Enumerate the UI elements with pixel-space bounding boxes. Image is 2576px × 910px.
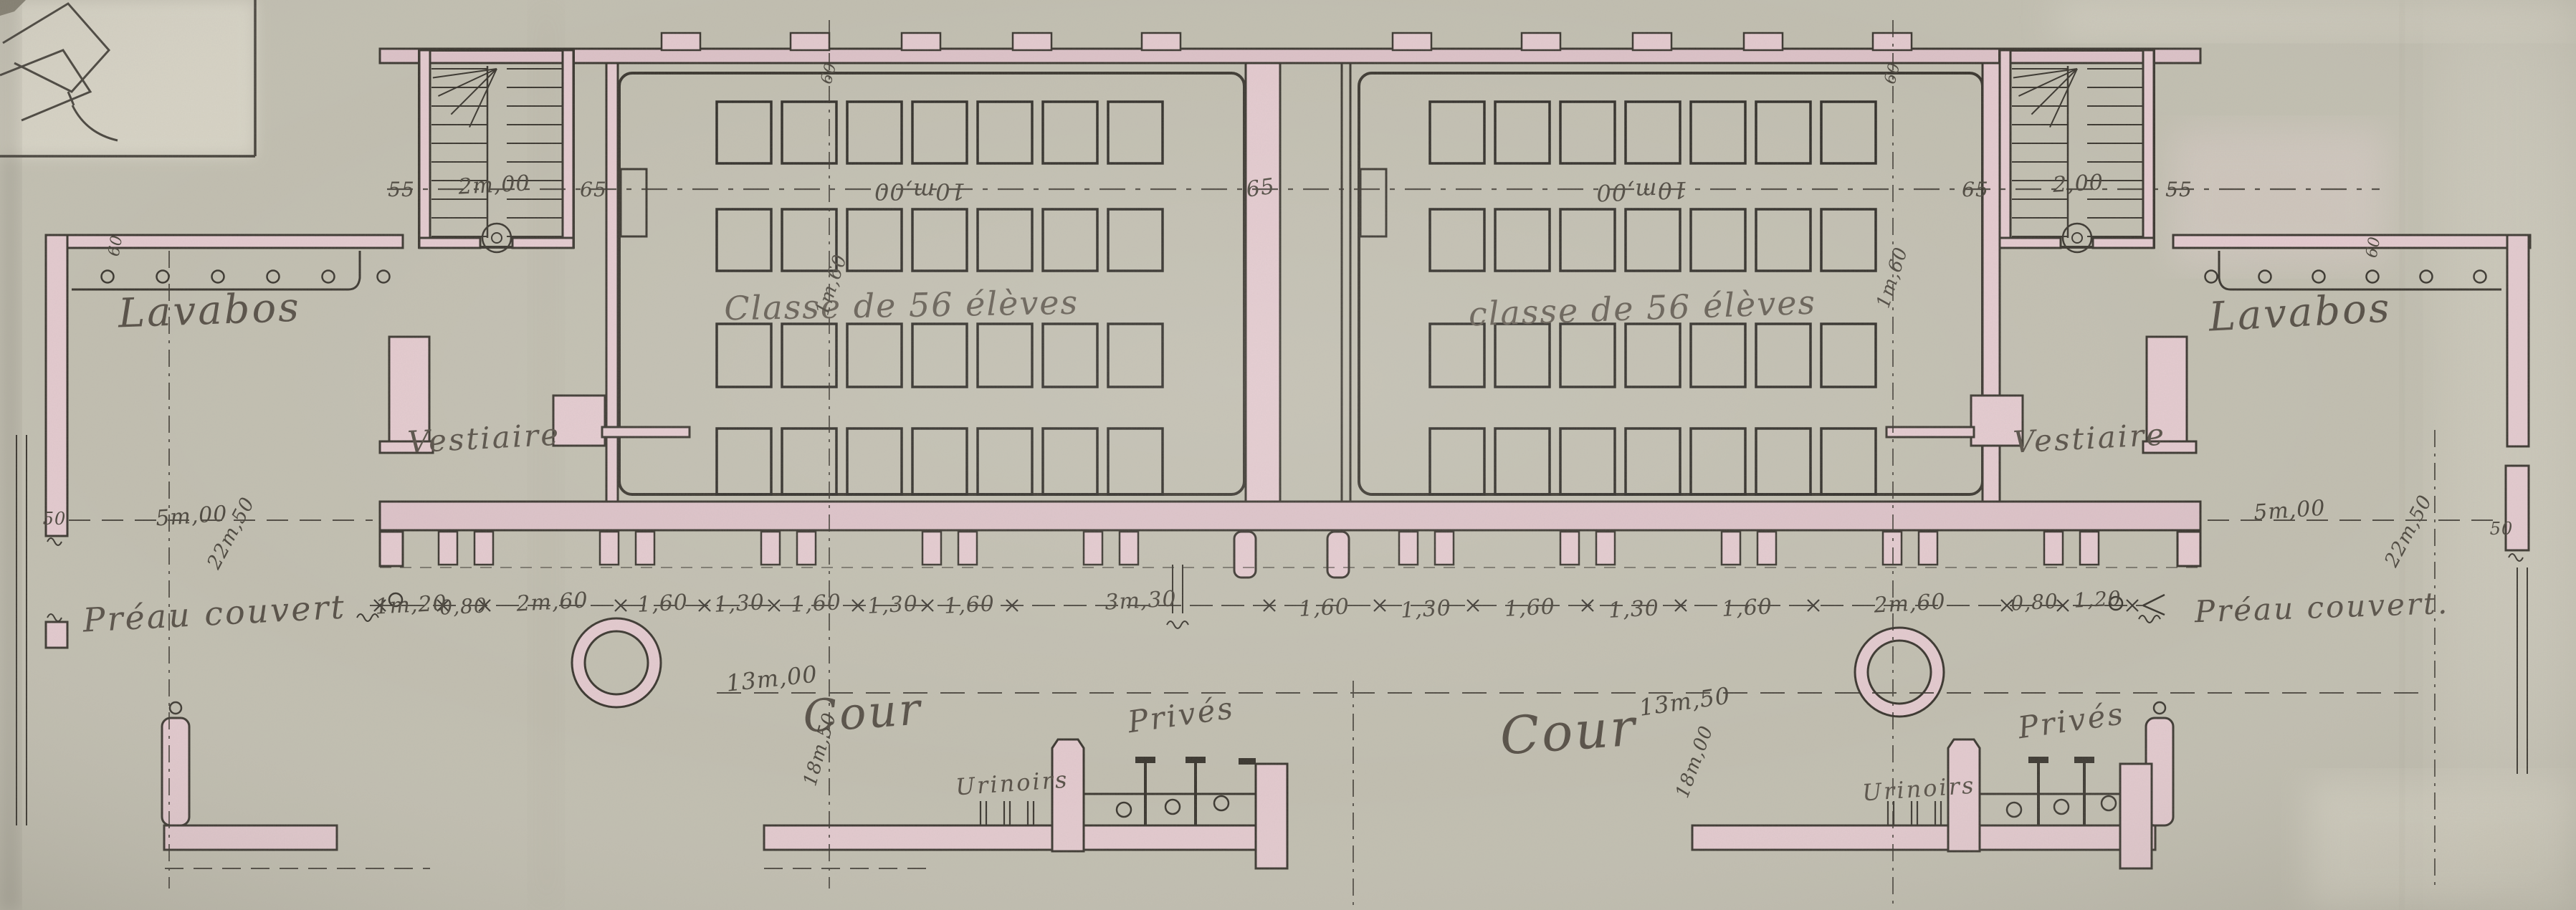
floor-plan-drawing: Lavabos Lavabos Vestiaire Vestiaire Clas… bbox=[0, 0, 2576, 910]
scanned-plan-sheet: Lavabos Lavabos Vestiaire Vestiaire Clas… bbox=[0, 0, 2576, 910]
vignette bbox=[0, 0, 2576, 910]
